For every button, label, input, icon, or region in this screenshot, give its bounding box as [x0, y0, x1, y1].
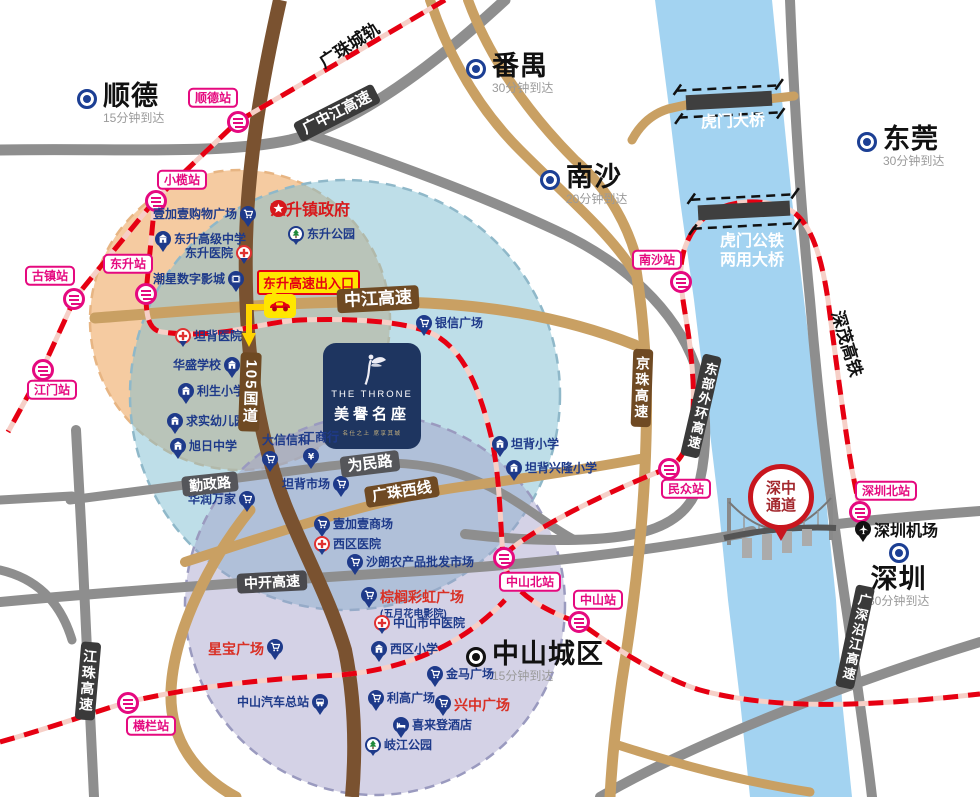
city-eta: 20分钟到达 — [566, 193, 627, 206]
poi-label: 西区小学 — [390, 641, 438, 657]
city-name: 番禺 — [492, 52, 553, 80]
cart-icon — [347, 554, 363, 570]
poi-label: 银信广场 — [435, 315, 483, 331]
poi-西区小学[interactable]: 西区小学 — [371, 641, 438, 657]
poi-金马广场[interactable]: 金马广场 — [427, 666, 494, 682]
poi-喜来登酒店[interactable]: 喜来登酒店 — [393, 717, 472, 733]
station-icon-江门站[interactable] — [32, 359, 54, 381]
poi-label: 沙朗农产品批发市场 — [366, 554, 474, 570]
city-eta: 30分钟到达 — [492, 82, 553, 95]
poi-中山市中医院[interactable]: 中山市中医院 — [374, 615, 465, 631]
cart-icon — [240, 206, 256, 222]
city-text: 南沙20分钟到达 — [566, 163, 627, 206]
poi-坦背兴隆小学[interactable]: 坦背兴隆小学 — [506, 460, 597, 476]
city-dot-icon — [540, 170, 560, 190]
station-icon-深圳北站[interactable] — [849, 501, 871, 523]
poi-中山汽车总站[interactable]: 中山汽车总站 — [237, 694, 328, 710]
city-dot-icon — [889, 543, 909, 563]
road-badge-京珠高速: 京珠高速 — [631, 349, 654, 428]
poi-label: 中山市中医院 — [393, 615, 465, 631]
tree-icon — [288, 226, 304, 242]
station-icon-南沙站[interactable] — [670, 271, 692, 293]
school-icon — [167, 413, 183, 429]
city-text: 顺德15分钟到达 — [103, 82, 164, 125]
city-eta: 15分钟到达 — [103, 112, 164, 125]
poi-label: 壹加壹购物广场 — [153, 206, 237, 222]
cart-icon — [314, 516, 330, 532]
city-eta: 30分钟到达 — [868, 595, 929, 608]
poi-label: 兴中广场 — [454, 695, 510, 713]
poi-岐江公园[interactable]: 岐江公园 — [365, 737, 432, 753]
project-name-en: THE THRONE — [331, 389, 413, 400]
road-badge-105国道: 105国道 — [238, 352, 262, 432]
city-marker-顺德: 顺德15分钟到达 — [77, 82, 164, 125]
town-government-marker[interactable]: 东升镇政府 — [270, 196, 350, 220]
poi-label: 华盛学校 — [173, 357, 221, 373]
poi-label: 金马广场 — [446, 666, 494, 682]
station-label-中山北站[interactable]: 中山北站 — [499, 572, 561, 592]
poi-label: 中山汽车总站 — [237, 694, 309, 710]
poi-东升公园[interactable]: 东升公园 — [288, 226, 355, 242]
station-icon-民众站[interactable] — [658, 458, 680, 480]
station-icon-顺德站[interactable] — [227, 111, 249, 133]
cart-icon — [267, 639, 283, 655]
poi-壹加壹商场[interactable]: 壹加壹商场 — [314, 516, 393, 532]
city-name: 中山城区 — [492, 640, 604, 668]
poi-利高广场[interactable]: 利高广场 — [368, 690, 435, 706]
city-marker-深圳: 深圳30分钟到达 — [868, 543, 929, 608]
poi-label: 求实幼儿园 — [186, 413, 246, 429]
city-name: 南沙 — [566, 163, 627, 191]
school-icon — [492, 436, 508, 452]
city-marker-南沙: 南沙20分钟到达 — [540, 163, 627, 206]
station-label-深圳北站[interactable]: 深圳北站 — [855, 481, 917, 501]
poi-label: 喜来登酒店 — [412, 717, 472, 733]
city-name: 顺德 — [103, 82, 164, 110]
poi-label: 西区医院 — [333, 536, 381, 552]
car-icon — [264, 294, 296, 318]
school-icon — [178, 383, 194, 399]
city-name: 深圳 — [871, 565, 927, 593]
city-text: 东莞30分钟到达 — [883, 125, 944, 168]
station-icon-中山站[interactable] — [568, 611, 590, 633]
cart-icon — [361, 587, 377, 603]
hospital-icon — [374, 615, 390, 631]
film-icon — [228, 271, 244, 287]
hospital-icon — [175, 328, 191, 344]
poi-华盛学校[interactable]: 华盛学校 — [173, 357, 240, 373]
map-label-虎门公铁两用大桥: 虎门公铁 两用大桥 — [720, 232, 784, 270]
city-marker-番禺: 番禺30分钟到达 — [466, 52, 553, 95]
cart-icon — [239, 491, 255, 507]
city-eta: 30分钟到达 — [883, 155, 944, 168]
station-label-顺德站[interactable]: 顺德站 — [188, 88, 238, 108]
poi-label: 东升医院 — [185, 245, 233, 261]
poi-利生小学[interactable]: 利生小学 — [178, 383, 245, 399]
poi-壹加壹购物广场[interactable]: 壹加壹购物广场 — [153, 206, 256, 222]
poi-label: 利生小学 — [197, 383, 245, 399]
road-badge-中开高速: 中开高速 — [237, 570, 308, 594]
poi-坦背医院[interactable]: 坦背医院 — [175, 328, 242, 344]
cart-icon — [262, 451, 278, 467]
project-tagline: 名仕之上 席享其城 — [342, 429, 401, 437]
city-marker-东莞: 东莞30分钟到达 — [857, 125, 944, 168]
channel-label-line2: 通道 — [766, 497, 796, 514]
poi-label: 坦背兴隆小学 — [525, 460, 597, 476]
school-icon — [371, 641, 387, 657]
poi-兴中广场[interactable]: 兴中广场 — [435, 695, 510, 713]
poi-label: 星宝广场 — [208, 639, 264, 657]
poi-旭日中学[interactable]: 旭日中学 — [170, 438, 237, 454]
poi-坦背小学[interactable]: 坦背小学 — [492, 436, 559, 452]
city-dot-icon — [466, 647, 486, 667]
station-label-东升站[interactable]: 东升站 — [103, 254, 153, 274]
shenzhong-channel-badge: 深中 通道 — [748, 464, 814, 530]
cart-icon — [416, 315, 432, 331]
poi-label: 深圳机场 — [874, 521, 938, 541]
poi-星宝广场[interactable]: 星宝广场 — [208, 639, 283, 657]
poi-label: 壹加壹商场 — [333, 516, 393, 532]
poi-工商行[interactable]: 工商行¥ — [303, 429, 339, 464]
location-map: THE THRONE 美譽名座 名仕之上 席享其城 东升镇政府 东升高速出入口 … — [0, 0, 980, 797]
school-icon — [155, 231, 171, 247]
station-label-中山站[interactable]: 中山站 — [573, 590, 623, 610]
plane-icon — [855, 521, 871, 537]
city-name: 东莞 — [883, 125, 944, 153]
station-label-古镇站[interactable]: 古镇站 — [25, 266, 75, 286]
city-eta: 15分钟到达 — [492, 670, 604, 683]
cart-icon — [427, 666, 443, 682]
bank-icon: ¥ — [303, 448, 319, 464]
poi-label: 坦背医院 — [194, 328, 242, 344]
hospital-icon — [236, 245, 252, 261]
tree-icon — [365, 737, 381, 753]
school-icon — [506, 460, 522, 476]
road-badge-中江高速: 中江高速 — [336, 285, 419, 313]
project-name-cn: 美譽名座 — [334, 403, 410, 424]
city-dot-icon — [466, 59, 486, 79]
svg-text:¥: ¥ — [308, 451, 315, 461]
city-text: 中山城区15分钟到达 — [492, 640, 604, 683]
map-label-虎门大桥: 虎门大桥 — [701, 111, 766, 132]
star-icon — [270, 200, 287, 217]
bus-icon — [312, 694, 328, 710]
station-label-南沙站[interactable]: 南沙站 — [632, 250, 682, 270]
station-label-民众站[interactable]: 民众站 — [661, 479, 711, 499]
poi-坦背市场[interactable]: 坦背市场 — [282, 476, 349, 492]
school-icon — [224, 357, 240, 373]
poi-label: 岐江公园 — [384, 737, 432, 753]
poi-label: 工商行 — [303, 429, 339, 445]
station-icon-横栏站[interactable] — [117, 692, 139, 714]
cart-icon — [333, 476, 349, 492]
poi-求实幼儿园[interactable]: 求实幼儿园 — [167, 413, 246, 429]
city-dot-icon — [77, 89, 97, 109]
hospital-icon — [314, 536, 330, 552]
poi-银信广场[interactable]: 银信广场 — [416, 315, 483, 331]
poi-沙朗农产品批发市场[interactable]: 沙朗农产品批发市场 — [347, 554, 474, 570]
poi-label: 棕榈彩虹广场 — [380, 587, 464, 605]
station-label-小榄站[interactable]: 小榄站 — [157, 170, 207, 190]
station-icon-中山北站[interactable] — [493, 547, 515, 569]
station-label-江门站[interactable]: 江门站 — [27, 380, 77, 400]
station-label-横栏站[interactable]: 横栏站 — [126, 716, 176, 736]
cart-icon — [435, 695, 451, 711]
station-icon-古镇站[interactable] — [63, 288, 85, 310]
channel-label-line1: 深中 — [766, 480, 796, 497]
swan-logo-icon — [357, 353, 387, 385]
poi-label: 利高广场 — [387, 690, 435, 706]
poi-label: 潮星数字影城 — [153, 271, 225, 287]
poi-东升医院[interactable]: 东升医院 — [185, 245, 252, 261]
poi-深圳机场[interactable]: 深圳机场 — [855, 521, 938, 541]
poi-label: 旭日中学 — [189, 438, 237, 454]
city-text: 深圳30分钟到达 — [868, 565, 929, 608]
school-icon — [170, 438, 186, 454]
hotel-icon — [393, 717, 409, 733]
city-dot-icon — [857, 132, 877, 152]
poi-西区医院[interactable]: 西区医院 — [314, 536, 381, 552]
poi-label: 坦背市场 — [282, 476, 330, 492]
city-text: 番禺30分钟到达 — [492, 52, 553, 95]
poi-潮星数字影城[interactable]: 潮星数字影城 — [153, 271, 244, 287]
poi-label: 东升公园 — [307, 226, 355, 242]
poi-label: 坦背小学 — [511, 436, 559, 452]
cart-icon — [368, 690, 384, 706]
